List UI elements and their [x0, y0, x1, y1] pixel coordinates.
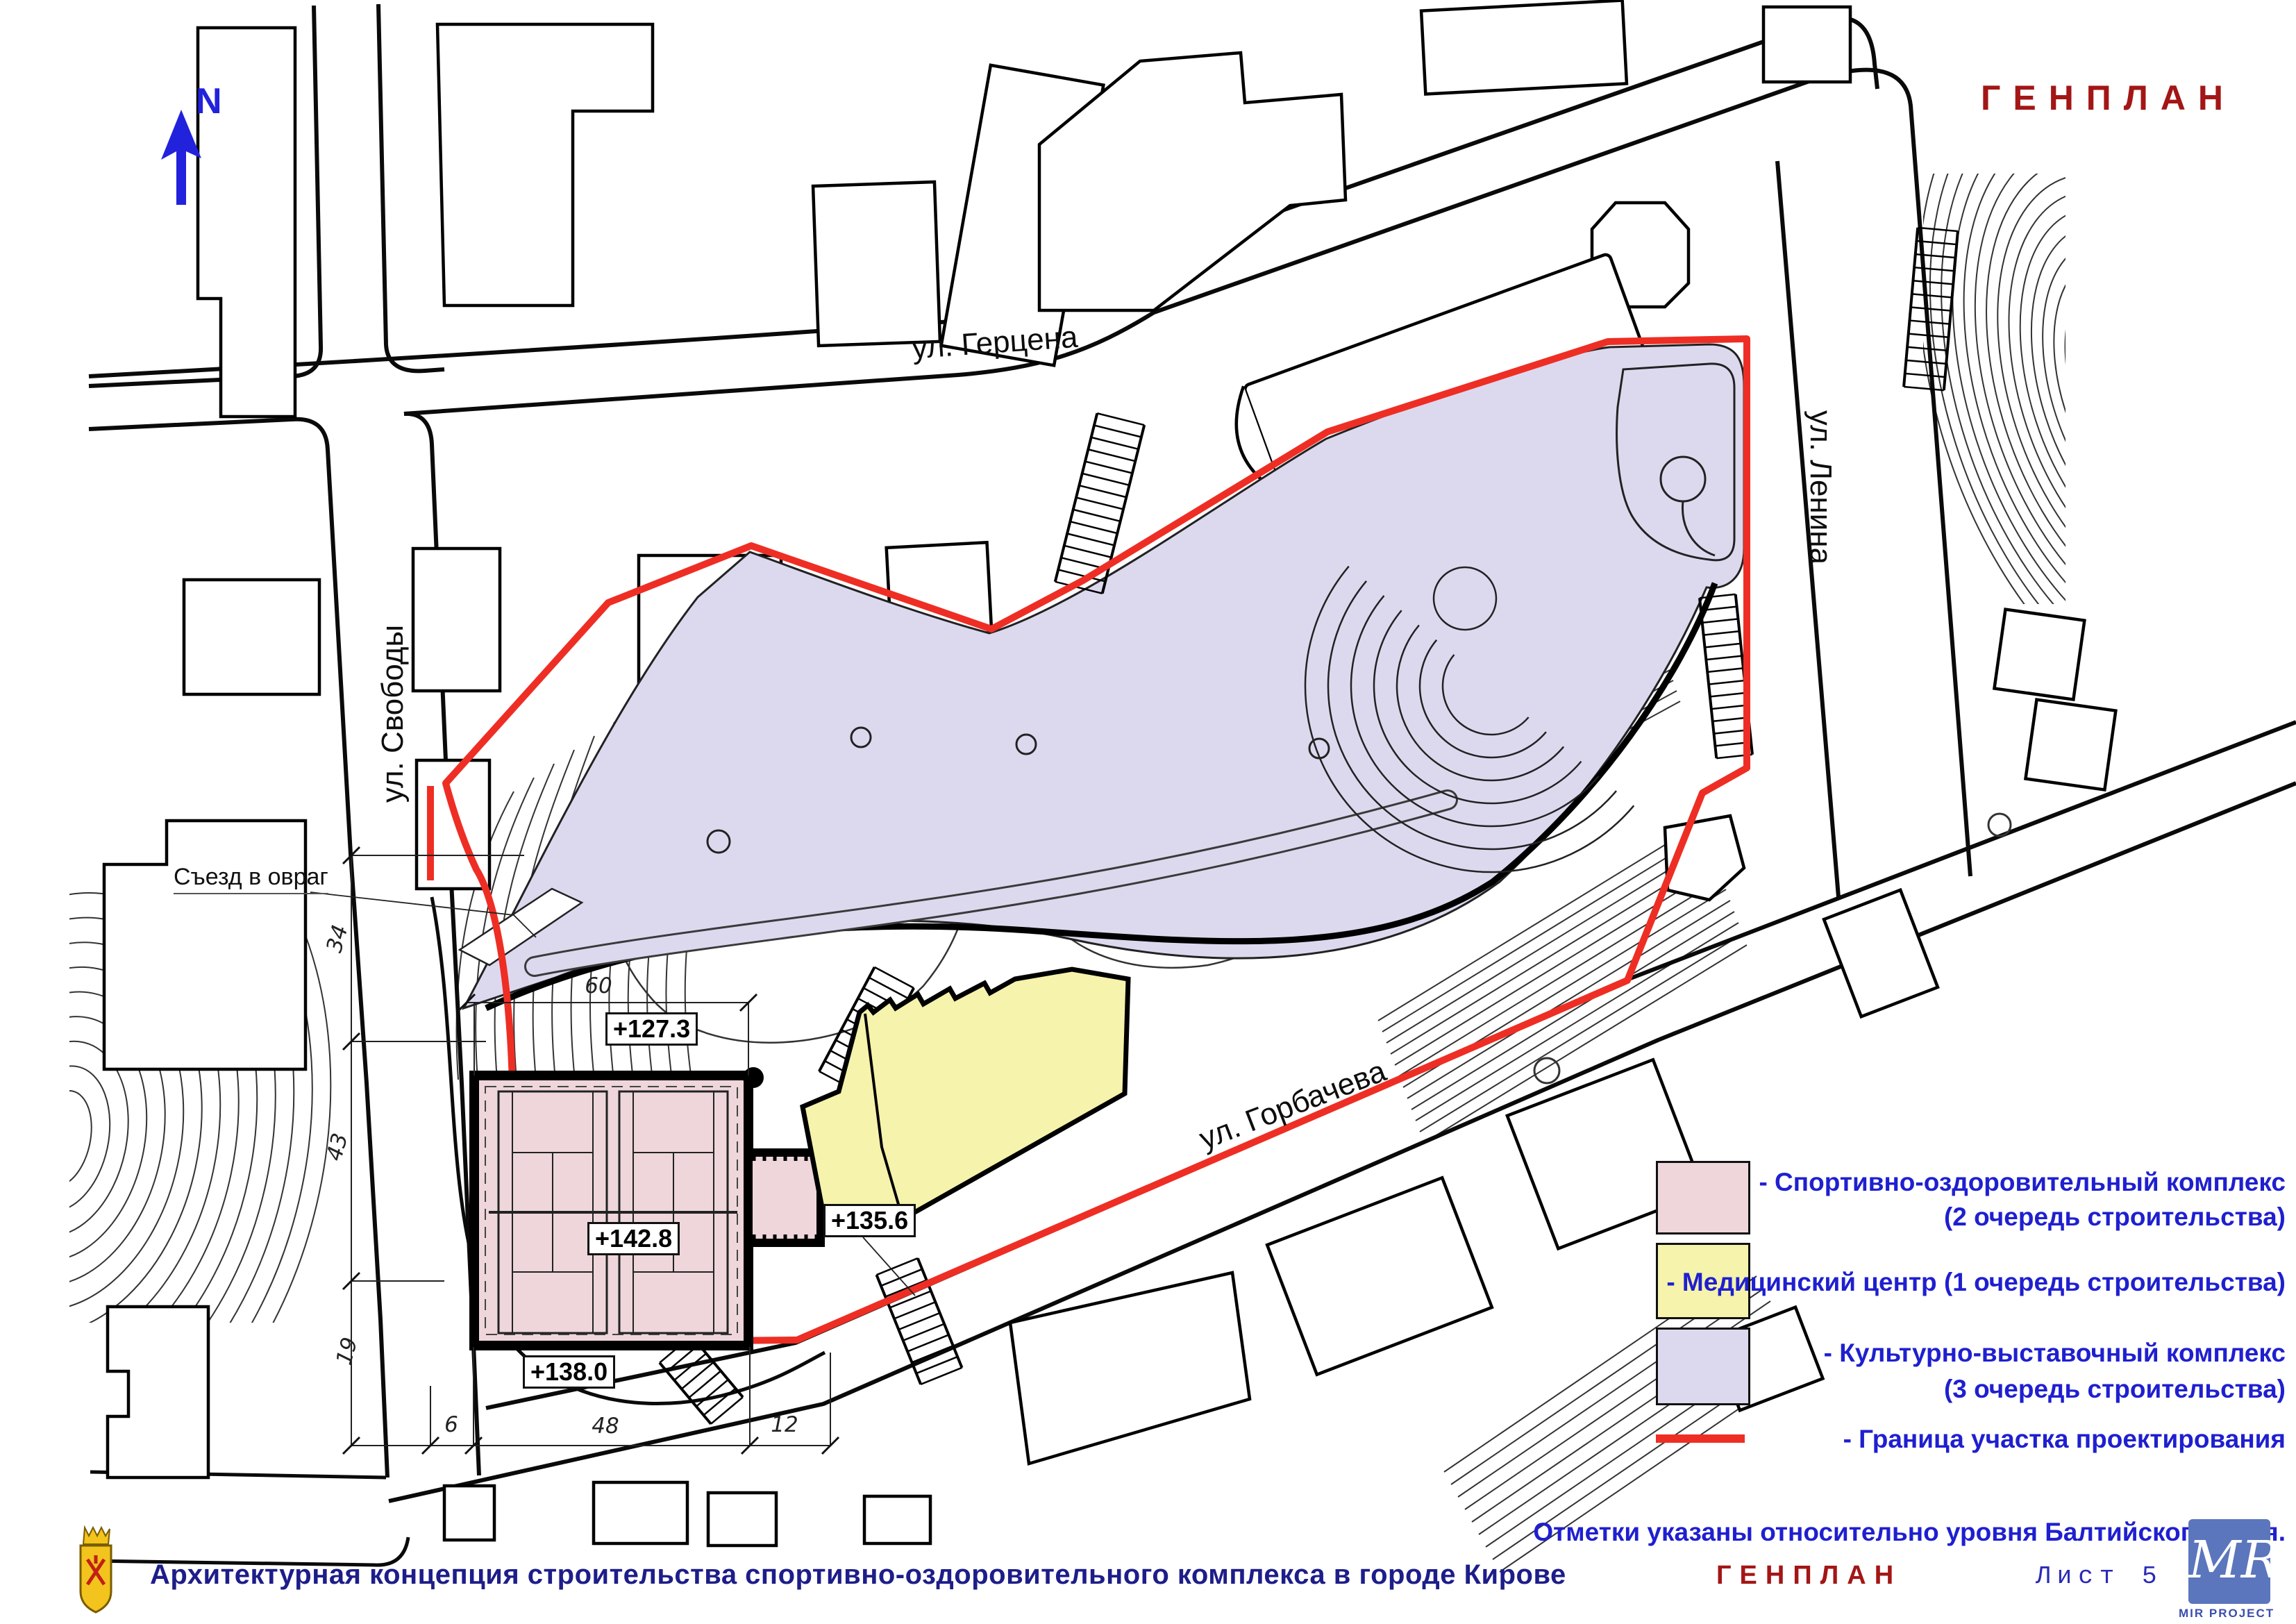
- stair-step: [869, 978, 909, 998]
- ravine-exit-callout: Съезд в овраг: [174, 864, 328, 894]
- legend-label: - Медицинский центр (1 очередь строитель…: [1666, 1268, 2286, 1297]
- stair-step: [1704, 644, 1741, 647]
- dimension-value-48: 48: [592, 1414, 619, 1439]
- stair-step: [1073, 510, 1121, 521]
- stair-step: [1914, 267, 1954, 271]
- dimension-value-60: 60: [585, 973, 612, 998]
- elevation-mark: +142.8: [587, 1222, 680, 1255]
- stair-step: [1706, 656, 1742, 660]
- stair-step: [1091, 437, 1139, 449]
- stair-step: [1085, 462, 1132, 474]
- stair-step: [1082, 474, 1130, 485]
- contour-line: [1947, 139, 2296, 639]
- mir-project-logo-caption: MIR PROJECT: [2179, 1607, 2274, 1621]
- contour-line: [2009, 218, 2261, 560]
- kirov-crest-icon: [81, 1527, 111, 1612]
- stair-step: [1713, 717, 1749, 721]
- legend-label: (3 очередь строительства): [1944, 1375, 2286, 1404]
- contour-line: [2070, 296, 2200, 480]
- cultural-exhibition-complex: [460, 344, 1754, 1008]
- stair-step: [1709, 680, 1745, 684]
- north-label: N: [196, 81, 222, 122]
- legend-label: - Спортивно-оздоровительный комплекс: [1759, 1168, 2286, 1197]
- drawing-name: ГЕНПЛАН: [1716, 1561, 1902, 1591]
- stair-step: [876, 1258, 917, 1275]
- stair-step: [907, 1335, 948, 1352]
- stair-step: [1094, 426, 1141, 437]
- stair-step: [1076, 498, 1123, 510]
- stair-step: [1702, 619, 1738, 622]
- sheet-number: Лист 5: [2036, 1562, 2163, 1591]
- stair-step: [1070, 521, 1117, 533]
- stair-step: [1064, 546, 1112, 558]
- slope-hatch: [1411, 912, 1734, 1110]
- stair-step: [903, 1324, 944, 1341]
- contour-line: [2054, 277, 2215, 501]
- stair-step: [1907, 347, 1947, 351]
- stair-step: [912, 1346, 953, 1362]
- stair-step: [1700, 594, 1736, 598]
- stair-step: [1067, 534, 1114, 546]
- mir-project-logo: MR: [2188, 1519, 2270, 1604]
- legend-boundary-line-sample: [1656, 1434, 1745, 1443]
- contour-line: [1963, 158, 2296, 619]
- contour-line: [25, 1085, 99, 1192]
- stair-step: [1710, 693, 1746, 696]
- project-title: Архитектурная концепция строительства сп…: [150, 1559, 1566, 1591]
- contour-line: [2039, 258, 2231, 521]
- stair-step: [1918, 228, 1958, 231]
- stair-step: [898, 1313, 939, 1330]
- legend-label: - Граница участка проектирования: [1843, 1425, 2286, 1454]
- contour-line: [1932, 119, 2296, 659]
- street-label-lenina: ул. Ленина: [1803, 410, 1838, 564]
- stair-step: [1909, 321, 1950, 324]
- stair-step: [696, 1380, 728, 1407]
- dimension-value-12: 12: [771, 1412, 798, 1437]
- contour-line: [2, 1057, 122, 1221]
- legend-swatch-sports: [1656, 1161, 1750, 1234]
- elevation-mark: +135.6: [823, 1204, 916, 1237]
- stair-step: [1904, 387, 1944, 390]
- stair-step: [711, 1397, 743, 1424]
- legend-note: Отметки указаны относительно уровня Балт…: [1533, 1518, 2286, 1547]
- stair-step: [1912, 294, 1952, 297]
- elevation-mark: +138.0: [523, 1355, 615, 1389]
- contour-line: [1902, 80, 2296, 698]
- stair-step: [1097, 413, 1144, 425]
- stair-step: [875, 967, 914, 988]
- sports-complex-building: [474, 1067, 821, 1346]
- contour-line: [1978, 178, 2292, 599]
- legend-label: (2 очередь строительства): [1944, 1203, 2286, 1232]
- stair-step: [689, 1371, 721, 1398]
- stair-step: [1711, 705, 1748, 709]
- stair-step: [1707, 668, 1743, 671]
- dimension-value-6: 6: [444, 1412, 458, 1437]
- sheet-title: ГЕНПЛАН: [1981, 78, 2236, 118]
- legend-label: - Культурно-выставочный комплекс: [1824, 1339, 2286, 1368]
- stair-step: [894, 1302, 935, 1319]
- stair-step: [1913, 281, 1953, 284]
- genplan-sheet: ГЕНПЛАН N ул. Герцена ул. Свободы ул. Ле…: [0, 0, 2296, 1624]
- stair-step: [1088, 449, 1135, 461]
- slope-hatch: [1407, 901, 1730, 1098]
- street-label-svobody: ул. Свободы: [376, 625, 410, 803]
- stair-step: [1079, 485, 1126, 497]
- stair-step: [881, 1269, 922, 1286]
- contour-line: [1886, 60, 2296, 717]
- elevation-mark: +127.3: [605, 1012, 698, 1046]
- stair-step: [921, 1368, 962, 1384]
- north-arrow-icon: [161, 110, 201, 205]
- stair-step: [1704, 631, 1740, 635]
- legend-swatch-cultural: [1656, 1328, 1750, 1405]
- stair-step: [703, 1389, 735, 1416]
